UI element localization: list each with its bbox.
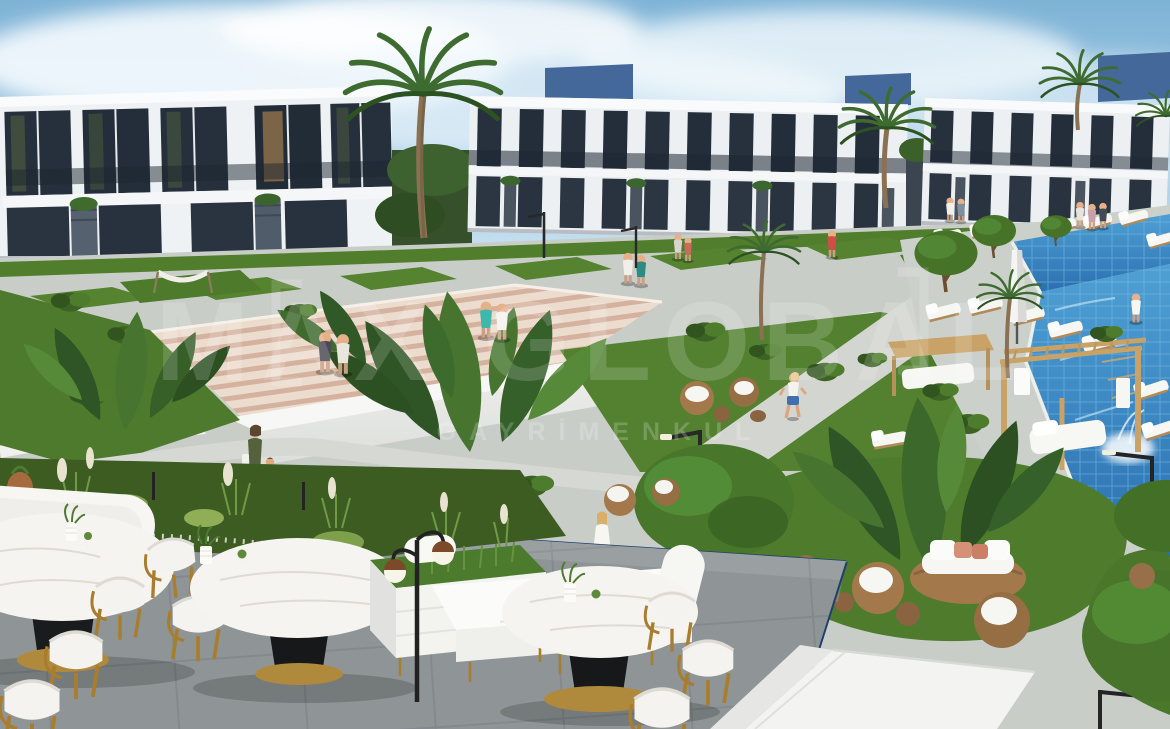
salmon-pillow [954,542,972,558]
render-canvas: .fr{fill:none;stroke:#3e6b2f;stroke-widt… [0,0,1170,729]
building-left [0,86,396,272]
bed-lantern [302,482,305,510]
rattan-planter [1129,563,1155,589]
resort-render: .fr{fill:none;stroke:#3e6b2f;stroke-widt… [0,0,1170,729]
rattan-pouf [896,602,920,626]
moss-mound [184,509,224,527]
salmon-pillow [972,544,988,559]
building-center [467,96,908,240]
upper-windows [4,102,392,195]
towel [1116,378,1130,408]
watermark-brand: MAX GLOBAL [156,279,1029,404]
roof-box [1098,52,1170,102]
watermark-subtitle: GAYRİMENKUL [437,418,764,446]
bed-lantern [152,472,155,500]
